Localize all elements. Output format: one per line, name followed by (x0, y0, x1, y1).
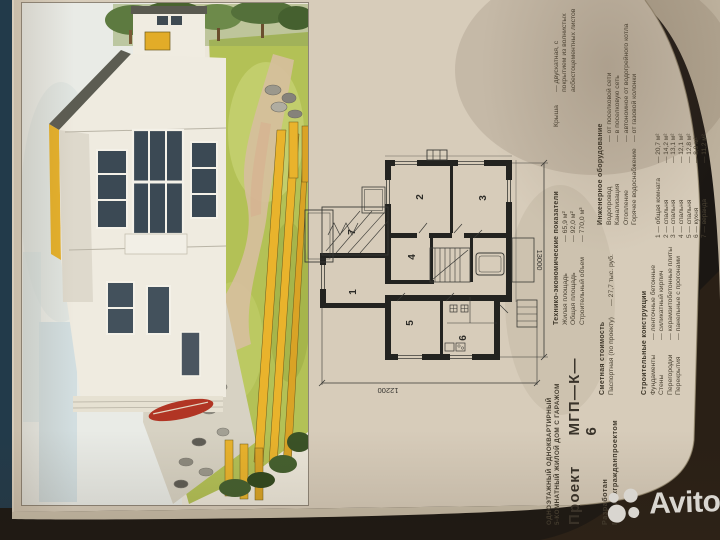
room-row: 7 — веранда — 11,2 м² (701, 52, 709, 238)
room-row: 1 — общая комната — 20,7 м² (655, 52, 663, 238)
photo-left-edge (0, 0, 14, 508)
tech-header: Технико-экономические показатели (553, 137, 560, 325)
engineering-row: Отопление — автономное от водогрейного к… (623, 20, 631, 225)
room-number-3: 3 (478, 195, 489, 201)
stairs (430, 248, 470, 282)
avito-watermark: Avito (605, 484, 720, 524)
engineering-row: Горячее водоснабжение — от газовой колон… (631, 20, 639, 225)
title-line-2: 5-КОМНАТНЫЙ ЖИЛОЙ ДОМ С ГАРАЖОМ (554, 355, 562, 525)
dimension-bottom: 12200 (378, 386, 399, 395)
tech-row: Строительный объем — 770,0 м³ (579, 137, 587, 325)
room-number-2: 2 (415, 194, 426, 200)
house-illustration (21, 2, 309, 506)
room-number-4: 4 (407, 254, 418, 260)
plan-dimensions (319, 160, 548, 386)
bathroom (476, 238, 534, 282)
room-number-6: 6 (458, 335, 469, 341)
plan-details (305, 150, 537, 351)
roof-fascia-yellow (49, 124, 61, 260)
construction-row: Перекрытия — панельные с прогонами (675, 245, 683, 395)
room-list-block: 1 — общая комната — 20,7 м² 2 — спальня … (655, 52, 709, 238)
room-row: 3 — спальня — 13,1 м² (670, 52, 678, 238)
title-line-1: ОДНОЭТАЖНЫЙ ОДНОКВАРТИРНЫЙ (546, 355, 554, 525)
chimney (427, 150, 447, 160)
bay-window (362, 187, 385, 213)
engineering-row: Водопровод — от поселковой сети (606, 20, 614, 225)
construction-row: Стены — силикатный кирпич (658, 245, 666, 395)
tech-row: Общая площадь — 92,0 м² (570, 137, 578, 325)
entry-door (181, 332, 200, 376)
engineering-header: Инженерное оборудование (597, 20, 604, 225)
project-title-block: ОДНОЭТАЖНЫЙ ОДНОКВАРТИРНЫЙ 5-КОМНАТНЫЙ Ж… (546, 355, 600, 525)
project-code: МГП—К—6 (566, 355, 600, 435)
construction-row: Перегородки — керамзитобетонные плиты (667, 245, 675, 395)
garage-door (145, 32, 170, 50)
cost-block: Сметная стоимость Паспортная (по проекту… (599, 235, 616, 395)
cost-header: Сметная стоимость (599, 235, 606, 395)
engineering-row: Канализация — в поселковую сеть (614, 20, 622, 225)
balcony-rail (125, 234, 187, 254)
room-row: 6 — кухня — 8,9 м² (693, 52, 701, 238)
cost-row: Паспортная (по проекту) — 27,7 тыс. руб. (608, 235, 616, 395)
plan-room-numbers: 1 2 3 4 5 6 7 (347, 194, 489, 341)
construction-header: Строительные конструкции (641, 245, 648, 395)
engineering-block: Инженерное оборудование Водопровод — от … (597, 20, 639, 225)
construction-block: Строительные конструкции Фундаменты — ле… (641, 245, 683, 395)
project-label: Проект (566, 465, 583, 525)
kitchen-appliances (445, 343, 465, 351)
wall-shadow (59, 130, 93, 302)
watermark-text: Avito (648, 485, 720, 521)
floor-plan: 1 2 3 4 5 6 7 13000 12200 (300, 135, 550, 401)
avito-logo-icon (605, 487, 642, 524)
project-code-row: Проект МГП—К—6 (566, 355, 600, 525)
garage-roofline (131, 6, 207, 14)
dimension-right: 13000 (535, 250, 544, 271)
entry-porch (517, 300, 537, 327)
roof-block: Крыша — двускатная, с покрытием из волни… (553, 5, 578, 127)
room-row: 5 — спальня — 12,8 м² (686, 52, 694, 238)
room-number-1: 1 (348, 289, 359, 295)
tech-indicators-block: Технико-экономические показатели Жилая п… (553, 137, 587, 325)
roof-row: Крыша — двускатная, с покрытием из волни… (553, 5, 578, 127)
spec-panel: ОДНОЭТАЖНЫЙ ОДНОКВАРТИРНЫЙ 5-КОМНАТНЫЙ Ж… (545, 0, 720, 540)
room-row: 2 — спальня — 14,2 м² (663, 52, 671, 238)
photo-of-catalog-page: 1 2 3 4 5 6 7 13000 12200 ОДНО (0, 0, 720, 540)
room-number-5: 5 (405, 320, 416, 326)
room-row: 4 — спальня — 12,1 м² (678, 52, 686, 238)
room-number-7: 7 (347, 229, 358, 235)
